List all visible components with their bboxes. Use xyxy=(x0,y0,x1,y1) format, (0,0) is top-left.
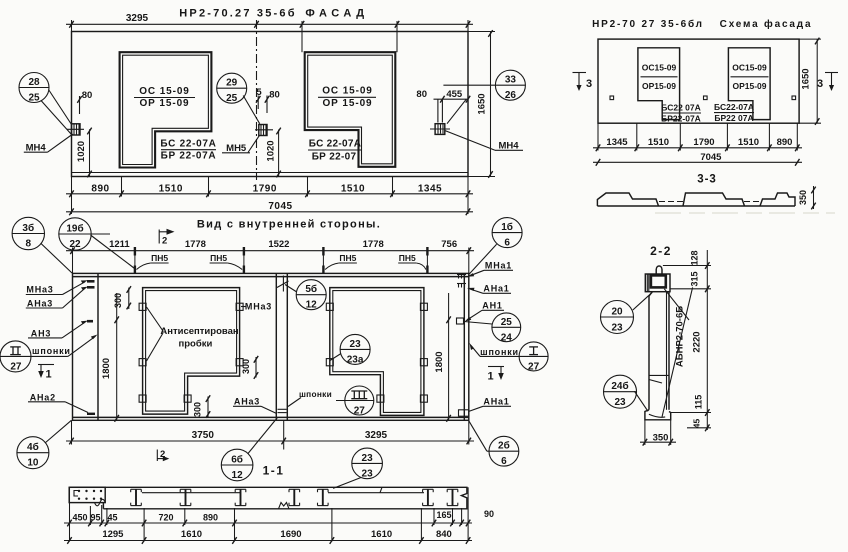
svg-text:455: 455 xyxy=(446,89,463,100)
svg-text:1345: 1345 xyxy=(606,137,628,148)
svg-text:Вид с внутренней стороны.: Вид с внутренней стороны. xyxy=(197,219,381,231)
svg-text:шпонки: шпонки xyxy=(299,389,332,399)
svg-text:720: 720 xyxy=(158,513,173,523)
svg-text:ОР 15-09: ОР 15-09 xyxy=(322,98,372,109)
svg-text:ОС 15-09: ОС 15-09 xyxy=(322,86,373,97)
svg-text:ФАСАД: ФАСАД xyxy=(305,8,368,20)
svg-text:МНа3: МНа3 xyxy=(245,302,272,312)
svg-text:300: 300 xyxy=(113,293,123,308)
svg-text:1790: 1790 xyxy=(693,137,714,148)
svg-text:МНа1: МНа1 xyxy=(485,261,512,271)
svg-text:22: 22 xyxy=(69,239,81,250)
svg-text:АБНР2-70-6Б: АБНР2-70-6Б xyxy=(675,306,686,367)
svg-text:3295: 3295 xyxy=(365,430,388,441)
svg-text:5б: 5б xyxy=(305,283,317,295)
svg-text:ПН5: ПН5 xyxy=(399,253,416,263)
svg-text:3-3: 3-3 xyxy=(697,174,717,186)
svg-text:НР2-70 27 35-6бл: НР2-70 27 35-6бл xyxy=(592,18,704,30)
svg-text:840: 840 xyxy=(436,529,452,540)
svg-text:23: 23 xyxy=(362,453,374,464)
svg-text:1295: 1295 xyxy=(102,529,124,540)
svg-text:2: 2 xyxy=(160,449,165,460)
svg-text:БС22 07А: БС22 07А xyxy=(661,103,701,113)
svg-text:350: 350 xyxy=(798,190,808,205)
svg-text:6: 6 xyxy=(501,456,507,467)
svg-text:АНа1: АНа1 xyxy=(483,397,509,407)
svg-text:1020: 1020 xyxy=(266,140,277,161)
svg-text:2: 2 xyxy=(162,236,167,247)
svg-text:шпонки: шпонки xyxy=(480,347,519,357)
svg-text:1510: 1510 xyxy=(648,137,669,148)
svg-text:24: 24 xyxy=(501,332,513,343)
svg-text:350: 350 xyxy=(653,433,669,444)
svg-text:10: 10 xyxy=(27,458,39,469)
svg-text:756: 756 xyxy=(441,239,457,250)
svg-text:2б: 2б xyxy=(498,440,510,452)
svg-text:ОС15-09: ОС15-09 xyxy=(732,63,767,73)
svg-text:300: 300 xyxy=(193,402,203,417)
svg-text:19б: 19б xyxy=(66,223,83,235)
svg-text:1345: 1345 xyxy=(418,184,442,195)
svg-text:1650: 1650 xyxy=(477,93,488,114)
svg-text:890: 890 xyxy=(91,184,109,195)
svg-text:25: 25 xyxy=(501,317,513,328)
svg-text:128: 128 xyxy=(690,250,700,265)
svg-text:25: 25 xyxy=(28,93,40,104)
svg-text:7045: 7045 xyxy=(268,201,292,212)
svg-text:1510: 1510 xyxy=(341,184,365,195)
svg-text:450: 450 xyxy=(72,513,87,523)
svg-text:1020: 1020 xyxy=(76,141,87,162)
svg-text:БС 22-07А: БС 22-07А xyxy=(160,138,216,149)
svg-text:8: 8 xyxy=(26,239,32,250)
svg-text:1790: 1790 xyxy=(253,184,277,195)
svg-text:пробки: пробки xyxy=(178,339,212,350)
svg-text:АНа2: АНа2 xyxy=(30,392,56,402)
svg-text:БР22 07А: БР22 07А xyxy=(714,113,753,123)
svg-text:33: 33 xyxy=(505,75,517,86)
svg-text:27: 27 xyxy=(528,362,540,373)
svg-text:1211: 1211 xyxy=(109,239,130,250)
svg-text:1610: 1610 xyxy=(371,529,392,540)
svg-text:6: 6 xyxy=(504,238,510,249)
svg-text:НР2-70.27 35-6б: НР2-70.27 35-6б xyxy=(179,8,296,20)
svg-text:890: 890 xyxy=(777,137,793,148)
svg-text:23: 23 xyxy=(614,397,626,408)
svg-text:ПН5: ПН5 xyxy=(151,253,168,263)
svg-text:23: 23 xyxy=(350,339,362,350)
svg-text:23: 23 xyxy=(611,323,623,334)
svg-text:3750: 3750 xyxy=(192,430,215,441)
svg-text:6б: 6б xyxy=(231,454,243,466)
svg-text:БС 22-07А: БС 22-07А xyxy=(309,139,362,150)
svg-text:890: 890 xyxy=(203,513,218,523)
svg-text:МНа3: МНа3 xyxy=(26,285,53,295)
svg-text:ПН5: ПН5 xyxy=(210,253,227,263)
svg-text:Схема фасада: Схема фасада xyxy=(720,18,813,30)
svg-text:24б: 24б xyxy=(611,380,628,392)
svg-text:1б: 1б xyxy=(501,221,513,233)
svg-text:3: 3 xyxy=(586,78,592,90)
svg-text:1800: 1800 xyxy=(434,351,445,372)
svg-text:ОР15-09: ОР15-09 xyxy=(732,81,766,91)
svg-text:БР 22-07: БР 22-07 xyxy=(312,152,357,163)
svg-text:80: 80 xyxy=(82,90,93,101)
svg-text:БС22-07А: БС22-07А xyxy=(714,102,754,112)
svg-text:115: 115 xyxy=(694,395,704,410)
svg-text:4б: 4б xyxy=(27,441,39,453)
svg-text:ПН5: ПН5 xyxy=(339,253,356,263)
svg-text:26: 26 xyxy=(505,90,517,101)
svg-text:12: 12 xyxy=(306,300,318,311)
svg-text:1510: 1510 xyxy=(159,184,183,195)
svg-text:27: 27 xyxy=(354,406,366,417)
svg-text:1522: 1522 xyxy=(268,239,289,250)
svg-text:3: 3 xyxy=(817,78,823,90)
svg-text:80: 80 xyxy=(269,90,280,101)
svg-text:7045: 7045 xyxy=(700,152,722,163)
svg-text:ОР15-09: ОР15-09 xyxy=(642,81,676,91)
svg-text:165: 165 xyxy=(436,510,451,520)
svg-text:АНа3: АНа3 xyxy=(234,397,260,407)
svg-text:45: 45 xyxy=(692,419,702,429)
svg-text:45: 45 xyxy=(107,513,117,523)
svg-text:1778: 1778 xyxy=(185,239,206,250)
svg-text:АН1: АН1 xyxy=(482,301,502,311)
svg-text:БР22-07А: БР22-07А xyxy=(661,114,701,124)
svg-text:23а: 23а xyxy=(347,354,364,365)
svg-text:ОС 15-09: ОС 15-09 xyxy=(139,86,190,97)
svg-text:80: 80 xyxy=(416,89,427,100)
svg-text:23: 23 xyxy=(362,468,374,479)
svg-text:2220: 2220 xyxy=(692,331,703,352)
svg-text:3295: 3295 xyxy=(126,13,149,24)
svg-text:300: 300 xyxy=(241,359,251,374)
svg-text:1800: 1800 xyxy=(101,358,112,379)
svg-text:1650: 1650 xyxy=(801,68,812,89)
svg-text:АН3: АН3 xyxy=(31,329,51,339)
svg-text:28: 28 xyxy=(28,77,40,88)
svg-text:1610: 1610 xyxy=(181,529,202,540)
svg-text:АНа1: АНа1 xyxy=(483,284,509,294)
svg-text:3б: 3б xyxy=(22,222,34,234)
svg-text:20: 20 xyxy=(611,307,623,318)
svg-text:1: 1 xyxy=(488,371,494,383)
svg-text:12: 12 xyxy=(232,470,244,481)
svg-text:315: 315 xyxy=(690,271,700,286)
svg-text:1690: 1690 xyxy=(280,529,301,540)
svg-text:2-2: 2-2 xyxy=(650,244,672,258)
svg-text:БР 22-07А: БР 22-07А xyxy=(161,151,217,162)
svg-text:шпонки: шпонки xyxy=(32,346,71,356)
svg-text:27: 27 xyxy=(10,362,22,373)
svg-text:АНа3: АНа3 xyxy=(27,299,53,309)
svg-text:29: 29 xyxy=(226,78,238,89)
svg-text:1778: 1778 xyxy=(363,239,384,250)
svg-text:25: 25 xyxy=(226,93,238,104)
svg-text:90: 90 xyxy=(484,509,494,519)
svg-text:1: 1 xyxy=(46,369,52,381)
svg-text:ОР 15-09: ОР 15-09 xyxy=(139,98,189,109)
svg-text:ОС15-09: ОС15-09 xyxy=(642,63,677,73)
svg-text:1-1: 1-1 xyxy=(263,464,285,478)
svg-text:Антисептирован: Антисептирован xyxy=(160,326,238,337)
svg-text:1510: 1510 xyxy=(738,137,759,148)
svg-text:95: 95 xyxy=(90,513,100,523)
